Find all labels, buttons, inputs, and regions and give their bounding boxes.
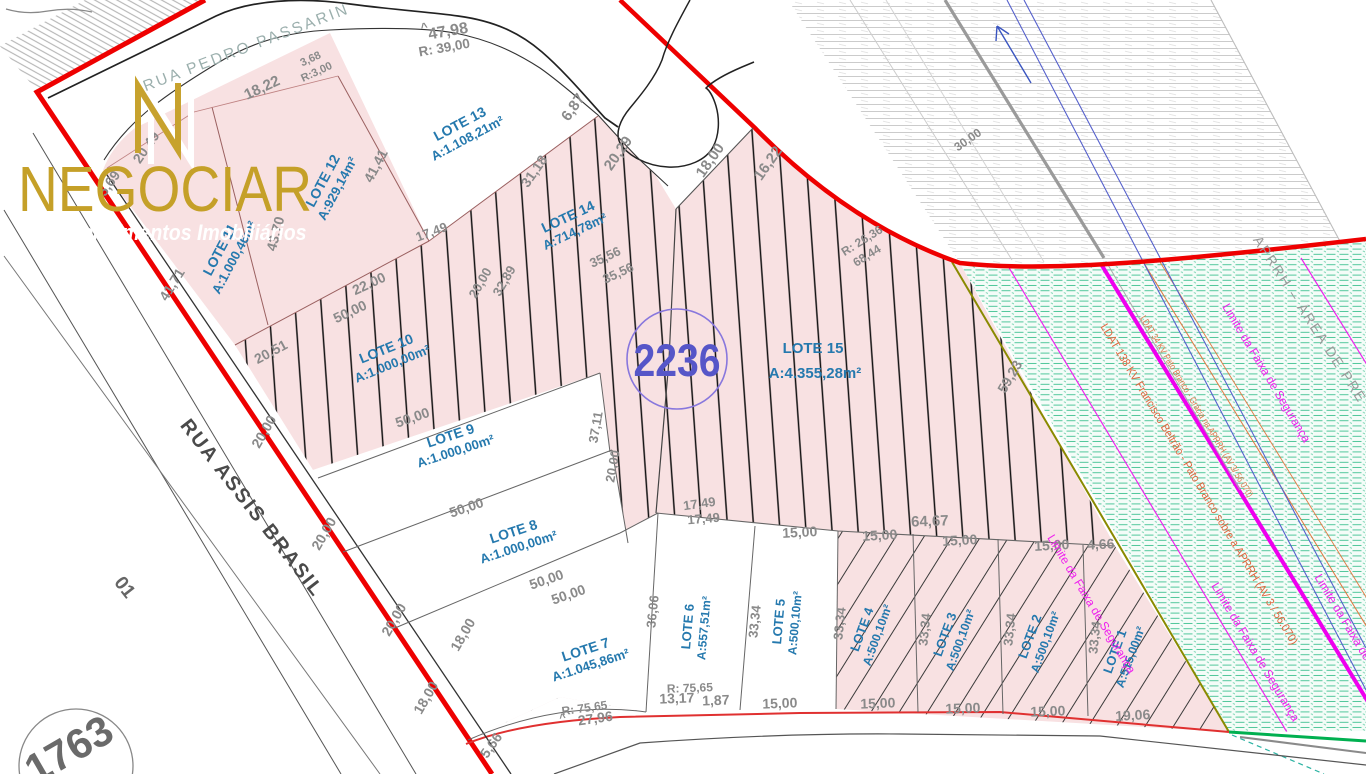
svg-text:15,00: 15,00 (762, 694, 798, 711)
svg-text:R: 75,65: R: 75,65 (667, 680, 714, 696)
svg-text:empreendimentos Imobiliários: empreendimentos Imobiliários (24, 220, 307, 245)
svg-text:64,67: 64,67 (911, 512, 949, 530)
svg-text:15,00: 15,00 (945, 699, 981, 716)
svg-text:4,66: 4,66 (1087, 535, 1115, 552)
svg-text:R: 39,00: R: 39,00 (417, 36, 471, 60)
svg-text:A:4.355,28m²: A:4.355,28m² (769, 365, 862, 382)
svg-text:17,49: 17,49 (687, 510, 721, 528)
svg-text:18,00: 18,00 (410, 678, 441, 717)
svg-text:15,00: 15,00 (942, 531, 978, 549)
svg-text:15,00: 15,00 (782, 523, 818, 541)
svg-text:2236: 2236 (634, 335, 721, 386)
svg-text:15,00: 15,00 (862, 526, 898, 544)
svg-text:41,71: 41,71 (156, 265, 188, 303)
svg-text:NEGOCIAR: NEGOCIAR (18, 153, 312, 225)
svg-text:15,00: 15,00 (860, 694, 896, 711)
svg-text:LOTE 15: LOTE 15 (783, 340, 844, 357)
svg-text:01: 01 (110, 573, 140, 603)
svg-text:19,06: 19,06 (1115, 706, 1151, 724)
svg-text:1763: 1763 (17, 706, 121, 774)
svg-text:15,00: 15,00 (1030, 702, 1066, 719)
